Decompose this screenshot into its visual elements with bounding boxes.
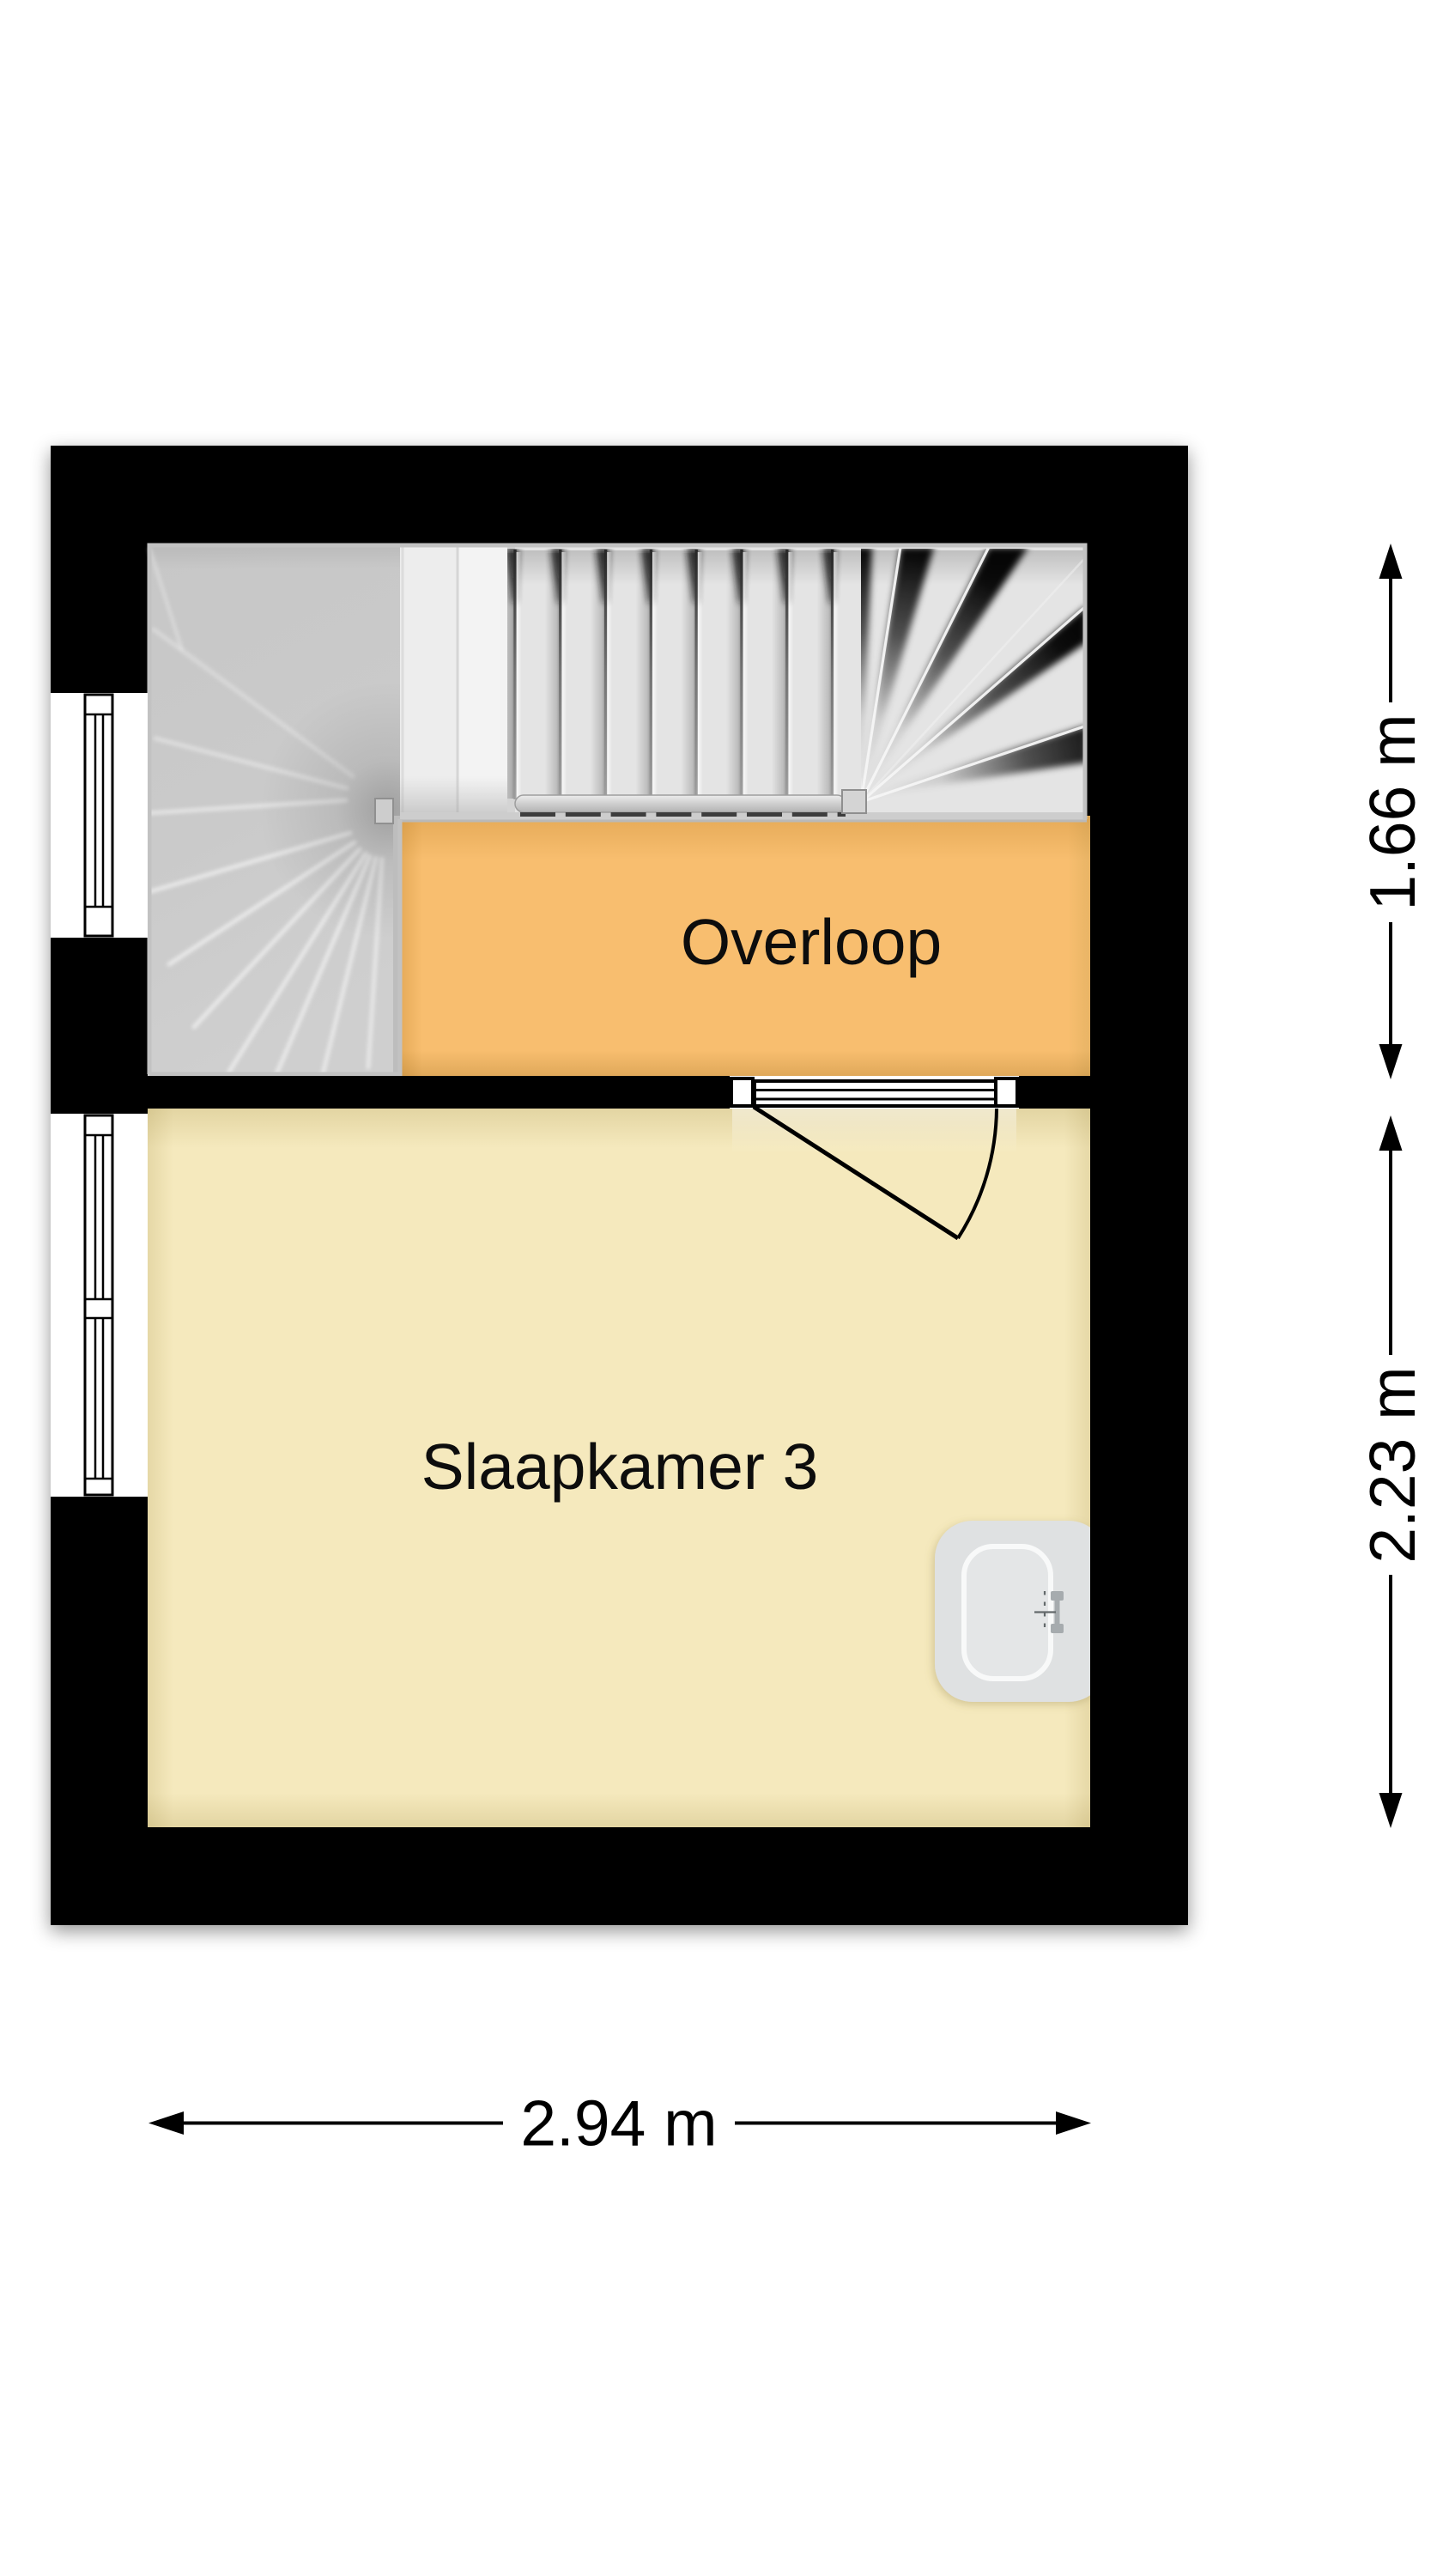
svg-text:Slaapkamer 3: Slaapkamer 3 xyxy=(421,1431,819,1503)
svg-text:2.23 m: 2.23 m xyxy=(1356,1366,1428,1563)
svg-text:1.66 m: 1.66 m xyxy=(1356,714,1428,910)
svg-text:Overloop: Overloop xyxy=(681,906,942,978)
svg-text:2.94 m: 2.94 m xyxy=(520,2087,717,2160)
